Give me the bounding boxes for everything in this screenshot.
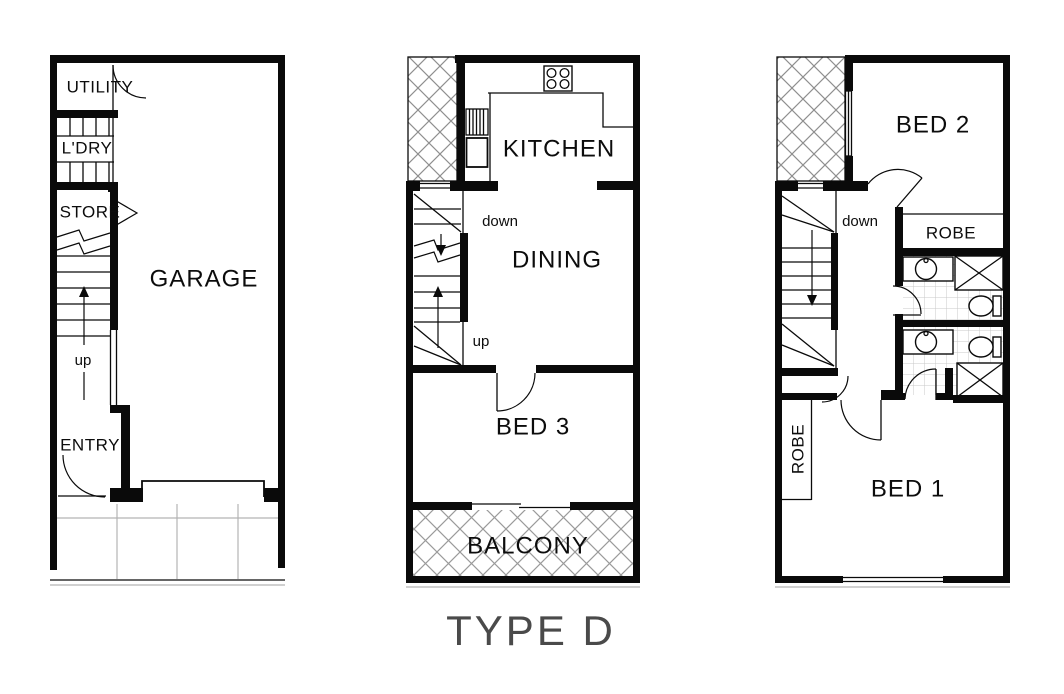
shower-icon bbox=[955, 256, 1003, 290]
stair-break-line bbox=[57, 230, 110, 241]
wall bbox=[895, 207, 903, 286]
bed2-label: BED 2 bbox=[896, 111, 970, 138]
wall bbox=[1003, 55, 1010, 583]
door-leaf bbox=[897, 178, 922, 207]
wall bbox=[895, 248, 1003, 256]
window bbox=[843, 578, 943, 582]
wall bbox=[936, 393, 953, 400]
wall bbox=[50, 110, 118, 118]
up-label-garage: up bbox=[75, 352, 92, 369]
wall bbox=[406, 576, 640, 583]
fridge-icon bbox=[467, 138, 488, 167]
laundry-label: L'DRY bbox=[62, 138, 113, 157]
bed1-label: BED 1 bbox=[871, 475, 945, 502]
door-swing bbox=[63, 455, 105, 497]
wall bbox=[406, 365, 496, 373]
stairs-living bbox=[414, 191, 468, 366]
plan-garage-level: UTILITY L'DRY STORE GARAGE up ENTRY bbox=[50, 55, 285, 585]
dining-label: DINING bbox=[512, 246, 602, 273]
garage-label: GARAGE bbox=[150, 265, 259, 292]
bathroom-ensuite bbox=[893, 256, 1003, 320]
wall bbox=[775, 181, 782, 583]
wall bbox=[406, 502, 472, 510]
wall bbox=[895, 320, 1003, 327]
robe-bed2-label: ROBE bbox=[926, 223, 976, 242]
wall bbox=[450, 181, 498, 191]
garage-door bbox=[142, 481, 264, 497]
wall bbox=[845, 55, 1010, 63]
stairs-up bbox=[57, 256, 110, 400]
wall bbox=[953, 395, 1003, 403]
wall bbox=[775, 368, 838, 376]
toilet-icon bbox=[969, 337, 1001, 357]
deck-hatch bbox=[408, 57, 457, 181]
floor-plan-canvas: UTILITY L'DRY STORE GARAGE up ENTRY bbox=[0, 0, 1064, 694]
basin-icon bbox=[916, 259, 937, 280]
wall bbox=[845, 156, 853, 181]
deck-hatch bbox=[777, 57, 845, 181]
wall bbox=[264, 488, 285, 502]
stairs-down bbox=[782, 191, 838, 368]
down-label-living: down bbox=[482, 213, 518, 230]
stove-icon bbox=[544, 66, 572, 91]
wall bbox=[782, 393, 837, 400]
wall bbox=[536, 365, 640, 373]
plan-living-level: KITCHEN down DINING up BED 3 BALCONY bbox=[406, 55, 640, 587]
kitchen-label: KITCHEN bbox=[503, 135, 615, 162]
wall bbox=[570, 502, 640, 510]
wall bbox=[121, 405, 130, 488]
balcony-label: BALCONY bbox=[467, 532, 589, 559]
plan-title: TYPE D bbox=[446, 607, 616, 654]
wall bbox=[50, 182, 113, 190]
door-swing bbox=[841, 400, 881, 440]
wall bbox=[110, 488, 143, 502]
entry-label: ENTRY bbox=[60, 435, 120, 454]
wall bbox=[881, 390, 898, 400]
robe-bed1-label: ROBE bbox=[788, 424, 807, 474]
shower-icon bbox=[957, 363, 1003, 397]
door-swing bbox=[868, 169, 922, 184]
floor-plan-drawing: UTILITY L'DRY STORE GARAGE up ENTRY bbox=[0, 0, 1064, 694]
basin-icon bbox=[916, 332, 937, 353]
wall bbox=[775, 576, 843, 583]
store-label: STORE bbox=[60, 202, 121, 221]
wall bbox=[775, 181, 798, 191]
up-label-living: up bbox=[473, 333, 490, 350]
wall bbox=[457, 55, 465, 181]
wall bbox=[943, 576, 1010, 583]
wall bbox=[50, 55, 285, 63]
stair-break-line bbox=[57, 243, 110, 254]
wall bbox=[406, 181, 420, 191]
toilet-icon bbox=[969, 296, 1001, 316]
window bbox=[846, 91, 852, 156]
wall bbox=[597, 181, 640, 190]
pantry-icon bbox=[466, 109, 488, 135]
wall bbox=[823, 181, 868, 191]
wall bbox=[50, 55, 57, 570]
driveway-grid bbox=[57, 504, 278, 579]
plan-bedroom-level: BED 2 down ROBE ROBE BED 1 bbox=[775, 55, 1010, 587]
bed3-label: BED 3 bbox=[496, 413, 570, 440]
wall bbox=[406, 181, 413, 583]
wall bbox=[455, 55, 640, 63]
bathroom-main bbox=[895, 327, 1003, 403]
utility-label: UTILITY bbox=[67, 77, 134, 96]
door-swing bbox=[497, 373, 535, 411]
down-label-bedroom: down bbox=[842, 213, 878, 230]
